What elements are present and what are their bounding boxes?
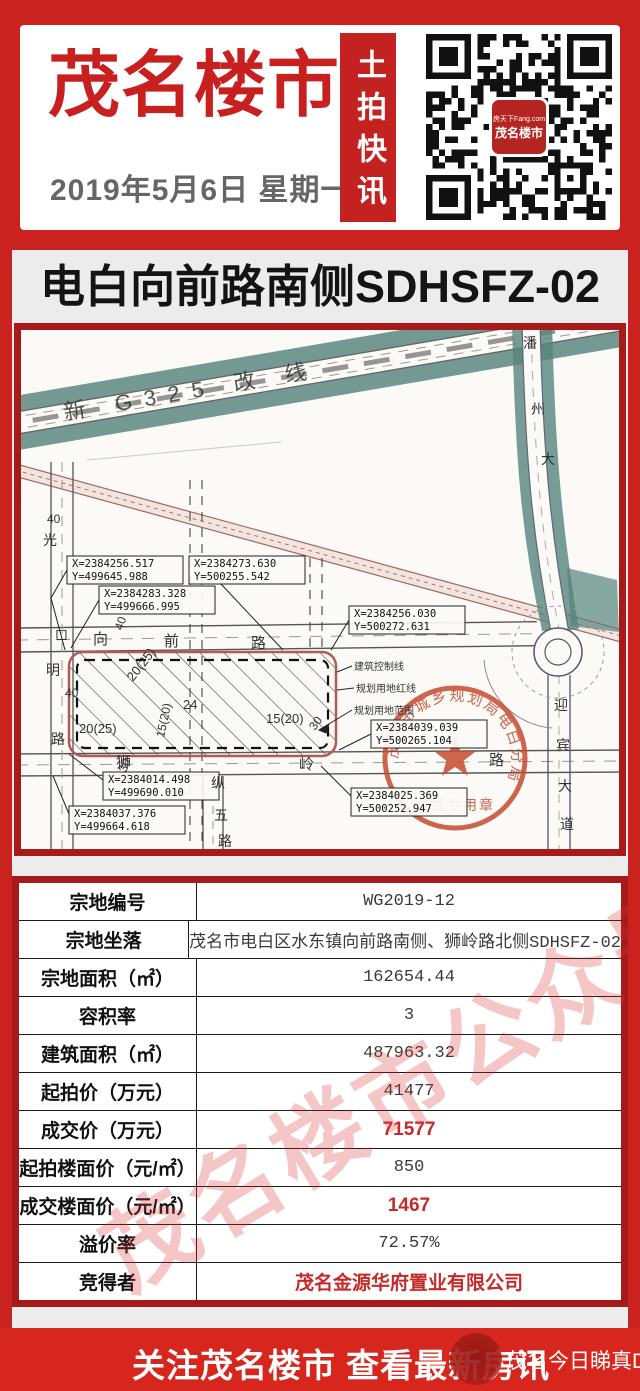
footer-bar: 关注茂名楼市 查看最新房讯 茂名今日睇真D (0, 1328, 640, 1391)
row-label: 宗地编号 (19, 883, 197, 920)
table-row: 宗地坐落茂名市电白区水东镇向前路南侧、狮岭路北侧SDHSFZ-02 (19, 921, 621, 959)
map-label: 路 (218, 833, 232, 849)
coordinate-text: Y=499666.995 (104, 601, 180, 613)
map-label: 向 (93, 631, 108, 648)
row-value: 茂名金源华府置业有限公司 (197, 1263, 621, 1300)
map-label: 路 (251, 635, 266, 652)
map-label: 前 (164, 633, 179, 650)
map-label: 40 (65, 686, 79, 700)
map-label: 24 (183, 697, 197, 712)
cadastral-map: 茂名市城乡规划局电白分局 审批专用章 X=2384256.517Y=499645… (14, 323, 626, 856)
row-value: 茂名市电白区水东镇向前路南侧、狮岭路北侧SDHSFZ-02 (189, 921, 621, 958)
row-label: 起拍价（万元） (19, 1073, 197, 1110)
table-row: 建筑面积（㎡）487963.32 (19, 1035, 621, 1073)
coordinate-text: Y=499690.010 (108, 787, 184, 799)
table-row: 竞得者茂名金源华府置业有限公司 (19, 1263, 621, 1300)
row-label: 竞得者 (19, 1263, 197, 1300)
qr-logo-line2: 茂名楼市 (495, 124, 543, 141)
ribbon-label: 土拍快讯 (346, 39, 390, 217)
table-row: 容积率3 (19, 997, 621, 1035)
row-value: WG2019-12 (197, 883, 621, 920)
row-label: 容积率 (19, 997, 197, 1034)
map-label: 规划用地范围 (354, 704, 414, 717)
footer-emblem-icon (450, 1333, 502, 1385)
row-value: 162654.44 (197, 959, 621, 996)
land-auction-ribbon: 土拍快讯 (340, 33, 396, 222)
map-label: 大 (541, 451, 555, 467)
map-label: 五 (214, 807, 228, 823)
table-row: 起拍楼面价（元/㎡）850 (19, 1149, 621, 1187)
header-card: 茂名楼市 2019年5月6日 星期一 土拍快讯 房天下Fang.com 茂名楼市 (20, 25, 620, 230)
map-label: 光 (43, 532, 57, 548)
land-parcel (69, 652, 336, 756)
table-row: 成交楼面价（元/㎡）1467 (19, 1187, 621, 1225)
map-label: 大 (558, 778, 572, 794)
row-label: 宗地面积（㎡） (19, 959, 197, 996)
cadastral-map-drawing: 茂名市城乡规划局电白分局 审批专用章 X=2384256.517Y=499645… (21, 330, 619, 849)
coordinate-text: Y=499664.618 (74, 821, 150, 833)
coordinate-text: X=2384256.030 (354, 608, 436, 620)
row-label: 成交楼面价（元/㎡） (19, 1187, 197, 1224)
map-label: 20(25) (79, 721, 117, 736)
map-label: 迎 (554, 697, 568, 713)
map-label: 路 (489, 752, 504, 769)
brand-title: 茂名楼市 (48, 47, 340, 126)
map-label: 潘 (523, 335, 537, 351)
map-label: 纵 (211, 775, 225, 791)
map-label: 建筑控制线 (354, 660, 404, 673)
row-label: 宗地坐落 (19, 921, 189, 958)
row-value: 72.57% (197, 1225, 621, 1262)
row-value: 1467 (197, 1187, 621, 1224)
map-label: 15(20) (266, 711, 304, 726)
table-row: 宗地面积（㎡）162654.44 (19, 959, 621, 997)
row-value: 71577 (197, 1111, 621, 1148)
coordinate-text: X=2384283.328 (104, 588, 186, 600)
coordinate-text: Y=500265.104 (376, 735, 452, 747)
date-text: 2019年5月6日 星期一 (50, 165, 351, 209)
parcel-title: 电白向前路南侧SDHSFZ-02 (12, 250, 628, 322)
coordinate-text: X=2384273.630 (194, 558, 276, 570)
qr-center-logo: 房天下Fang.com 茂名楼市 (489, 97, 549, 157)
row-value: 41477 (197, 1073, 621, 1110)
map-label: 州 (531, 401, 545, 417)
coordinate-text: Y=500255.542 (194, 571, 270, 583)
coordinate-text: X=2384037.376 (74, 808, 156, 820)
table-row: 宗地编号WG2019-12 (19, 883, 621, 921)
content-area: 电白向前路南侧SDHSFZ-02 (12, 250, 628, 1328)
qr-logo-line1: 房天下Fang.com (493, 114, 545, 124)
coordinate-text: X=2384256.517 (72, 558, 154, 570)
row-value: 487963.32 (197, 1035, 621, 1072)
table-row: 起拍价（万元）41477 (19, 1073, 621, 1111)
map-label: 规划用地红线 (356, 682, 416, 695)
map-label: 宾 (556, 737, 570, 753)
map-label: 岭 (299, 756, 314, 773)
map-label: 明 (46, 662, 60, 678)
row-label: 建筑面积（㎡） (19, 1035, 197, 1072)
coordinate-text: X=2384025.369 (356, 790, 438, 802)
map-label: 路 (51, 731, 65, 747)
coordinate-text: X=2384039.039 (376, 722, 458, 734)
row-value: 850 (197, 1149, 621, 1186)
row-value: 3 (197, 997, 621, 1034)
coordinate-text: Y=500252.947 (356, 803, 432, 815)
table-row: 成交价（万元）71577 (19, 1111, 621, 1149)
row-label: 溢价率 (19, 1225, 197, 1262)
parcel-info-table: 宗地编号WG2019-12宗地坐落茂名市电白区水东镇向前路南侧、狮岭路北侧SDH… (12, 876, 628, 1307)
qr-code: 房天下Fang.com 茂名楼市 (426, 34, 612, 220)
map-label: 道 (560, 816, 574, 832)
footer-watermark: 茂名今日睇真D (506, 1345, 640, 1375)
coordinate-text: X=2384014.498 (108, 774, 190, 786)
table-row: 溢价率72.57% (19, 1225, 621, 1263)
coordinate-text: Y=499645.988 (72, 571, 148, 583)
coordinate-text: Y=500272.631 (354, 621, 430, 633)
row-label: 起拍楼面价（元/㎡） (19, 1149, 197, 1186)
map-label: 40 (47, 512, 61, 526)
row-label: 成交价（万元） (19, 1111, 197, 1148)
